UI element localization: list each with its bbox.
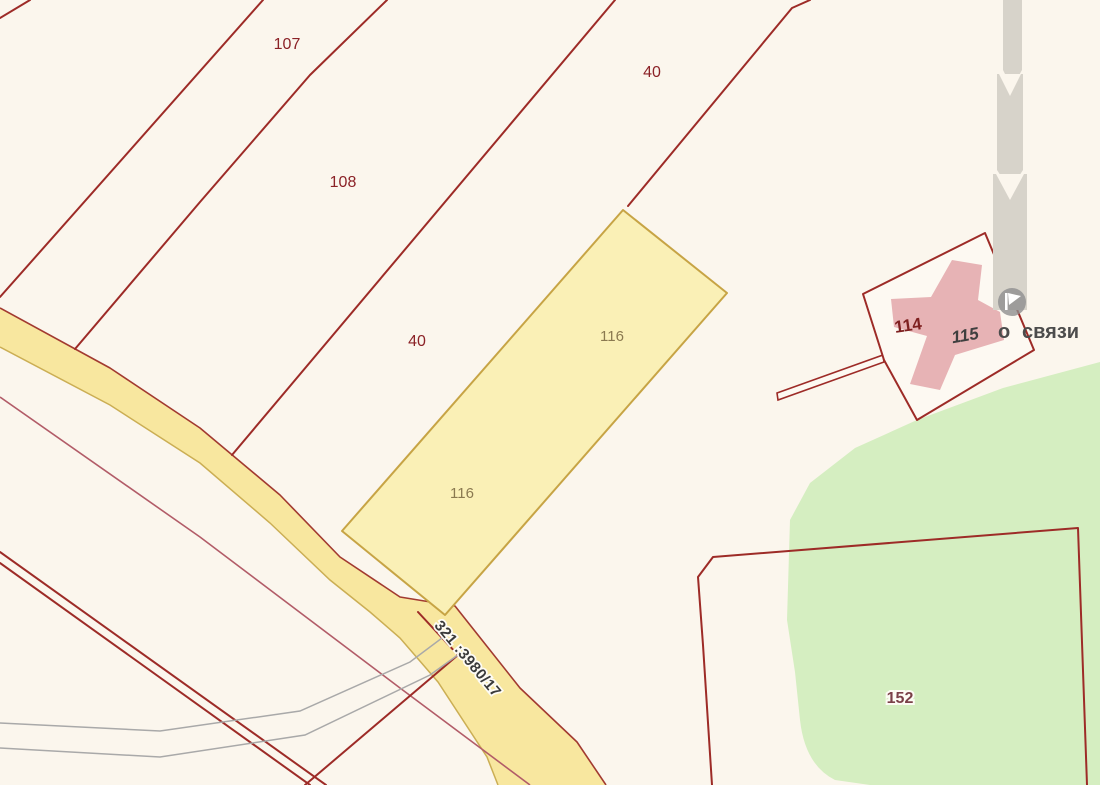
label-parcel-116-upper: 116 — [600, 328, 624, 345]
label-parcel-40-lower: 40 — [408, 333, 426, 350]
flag-pole-icon — [1005, 293, 1008, 310]
label-parcel-152: 152 — [887, 690, 914, 707]
label-poi-fragment: о — [998, 321, 1010, 343]
label-parcel-116-lower: 116 — [450, 485, 474, 502]
label-parcel-107: 107 — [274, 36, 301, 53]
label-poi-name: связи — [1022, 321, 1079, 343]
label-parcel-108: 108 — [330, 174, 357, 191]
poi-icon[interactable] — [998, 288, 1026, 316]
map-canvas[interactable]: 107 108 40 40 116 116 114 115 152 321 :3… — [0, 0, 1100, 785]
label-parcel-40-upper: 40 — [643, 64, 661, 81]
label-parcel-114: 114 — [893, 314, 923, 337]
